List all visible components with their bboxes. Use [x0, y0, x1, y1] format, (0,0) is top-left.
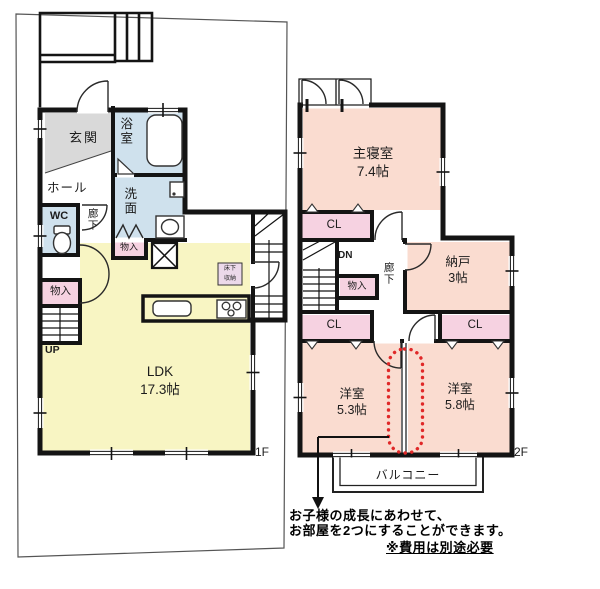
floor-plan-canvas: 玄関 ホール 浴室 洗面 WC 廊下 物入 物入 UP LDK 17.3帖 床下…	[0, 0, 600, 589]
bathtub-icon	[147, 115, 182, 166]
balcony-label: バルコニー	[355, 468, 461, 484]
porch-steps	[40, 13, 152, 106]
future-partition	[401, 343, 407, 453]
corridor-1f-label: 廊下	[85, 208, 99, 231]
closet-master-label: CL	[302, 218, 366, 233]
bath-label: 浴室	[117, 117, 133, 146]
west-room1-label: 洋室 5.3帖	[303, 386, 401, 419]
corridor-2f-label: 廊下	[381, 262, 395, 285]
ldk-label: LDK 17.3帖	[100, 363, 220, 398]
stairs-2f-dn	[303, 240, 335, 310]
floor1-tag: 1F	[255, 445, 269, 461]
storage-2f-label: 物入	[337, 281, 377, 293]
genkan-label: 玄関	[52, 130, 116, 147]
master-window-arcs	[302, 79, 363, 105]
toilet-icon	[54, 226, 71, 254]
west-room2-label: 洋室 5.8帖	[410, 381, 510, 414]
stairs-door-arc	[253, 262, 279, 288]
storage-top-label: 物入	[112, 242, 146, 254]
master-door-arc	[375, 212, 402, 240]
master-bedroom-label: 主寝室 7.4帖	[313, 145, 433, 180]
closet-right-label: CL	[444, 318, 506, 333]
closet-left-label: CL	[302, 318, 366, 333]
floor-plan-drawing	[0, 0, 600, 589]
dn-label: DN	[338, 249, 352, 262]
hall-label: ホール	[47, 180, 88, 196]
floor2-tag: 2F	[514, 445, 528, 461]
kitchen-sink-icon	[153, 301, 191, 316]
wc-label: WC	[44, 209, 74, 223]
stairs-1f-up	[42, 308, 78, 342]
nando-label: 納戸 3帖	[408, 254, 508, 287]
storage-left-label: 物入	[43, 285, 78, 299]
annotation-line3: ※費用は別途必要	[386, 537, 494, 556]
floor-storage-label: 床下 収納	[218, 264, 242, 284]
up-label: UP	[45, 344, 60, 358]
stairs-1f-upper	[255, 212, 284, 318]
wash-label: 洗面	[121, 187, 137, 216]
west2-door-arc	[409, 315, 435, 341]
floor-hatch-icon	[152, 243, 177, 268]
